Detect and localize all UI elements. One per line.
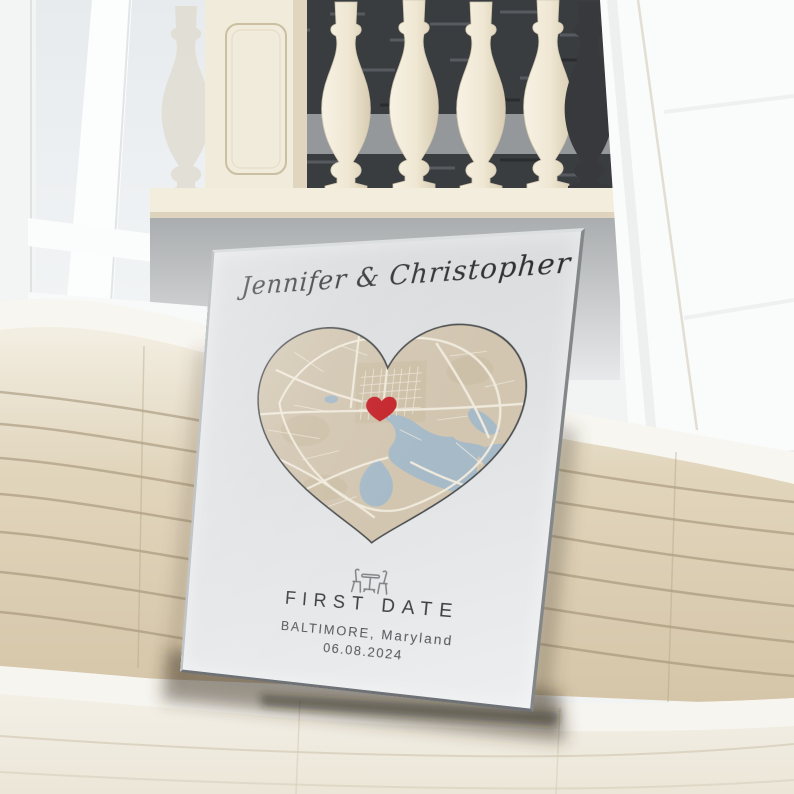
table-chairs-icon [348,565,394,597]
stone-base-rail-shadow [150,212,620,218]
heart-map [232,305,553,560]
poster-frame: Jennifer & Christopher [180,228,585,712]
poster: Jennifer & Christopher [195,222,598,702]
poster-title: Jennifer & Christopher [223,245,595,302]
scene: Jennifer & Christopher [0,0,794,794]
stone-pillar [205,0,307,196]
